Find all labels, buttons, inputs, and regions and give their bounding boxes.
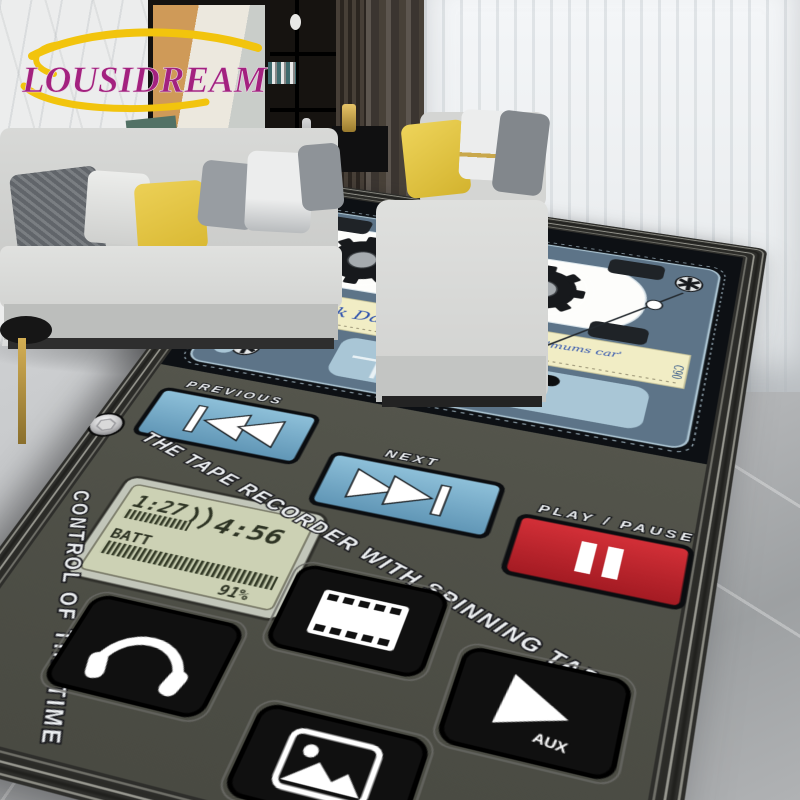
side-table-leg: [18, 338, 26, 444]
brand-logo: LOUSIDREAM: [10, 22, 300, 118]
pillow-grey: [297, 142, 345, 211]
logo-text: LOUSIDREAM: [21, 60, 268, 101]
logo-swoosh-top: [32, 32, 258, 56]
sofa-base: [382, 396, 542, 407]
side-table-top: [0, 316, 52, 344]
sofa-seat: [0, 246, 342, 308]
room-scene: TIME A: [0, 0, 800, 800]
pillow-grey: [491, 109, 551, 196]
sofa-front: [4, 304, 338, 340]
right-sofa: [376, 104, 548, 404]
sofa-base: [8, 338, 334, 349]
left-sofa: [0, 118, 342, 358]
